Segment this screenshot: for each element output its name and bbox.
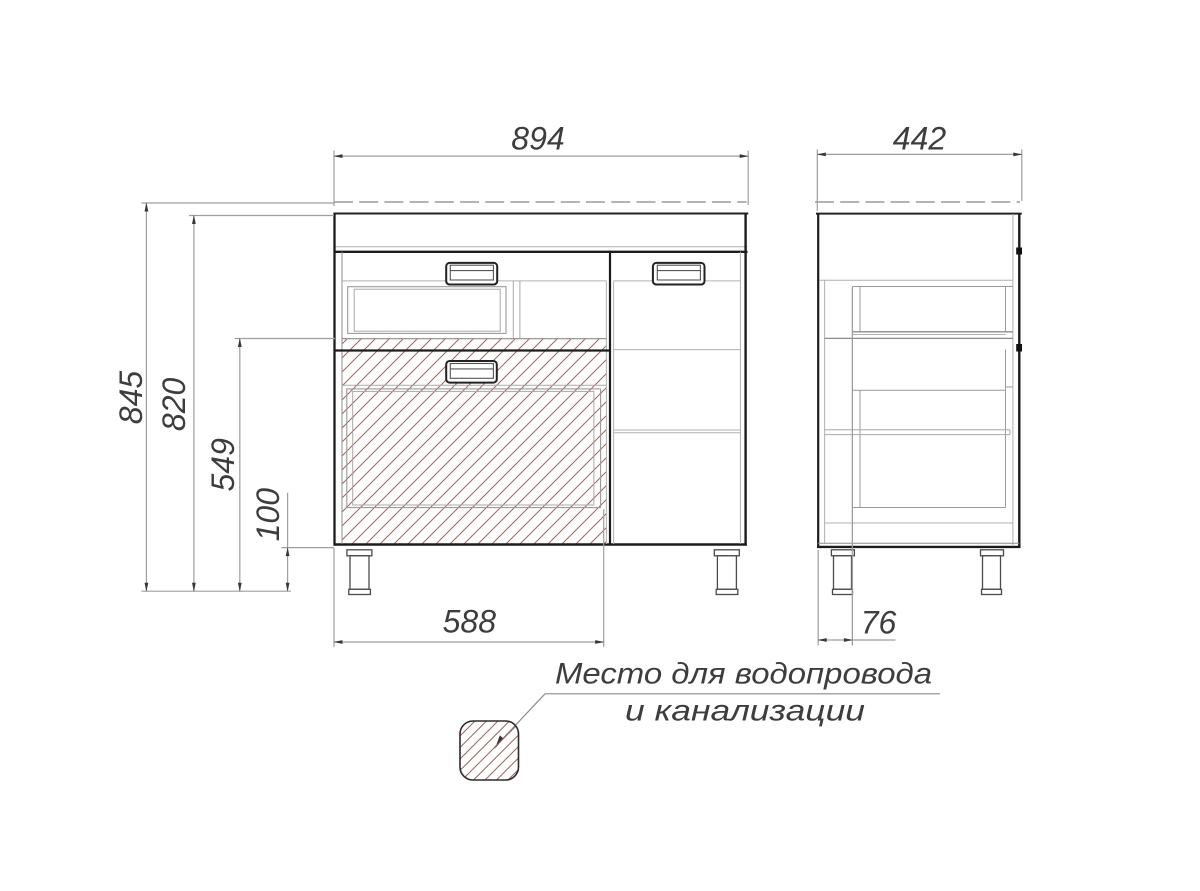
svg-text:442: 442 xyxy=(893,121,947,157)
svg-text:и канализации: и канализации xyxy=(625,695,865,728)
svg-text:100: 100 xyxy=(250,488,286,542)
svg-text:588: 588 xyxy=(443,604,497,640)
svg-text:Место для водопровода: Место для водопровода xyxy=(555,658,932,691)
svg-text:76: 76 xyxy=(861,605,897,641)
svg-text:845: 845 xyxy=(113,371,149,425)
svg-text:549: 549 xyxy=(205,438,241,492)
svg-text:820: 820 xyxy=(156,378,192,432)
svg-text:894: 894 xyxy=(511,121,564,157)
